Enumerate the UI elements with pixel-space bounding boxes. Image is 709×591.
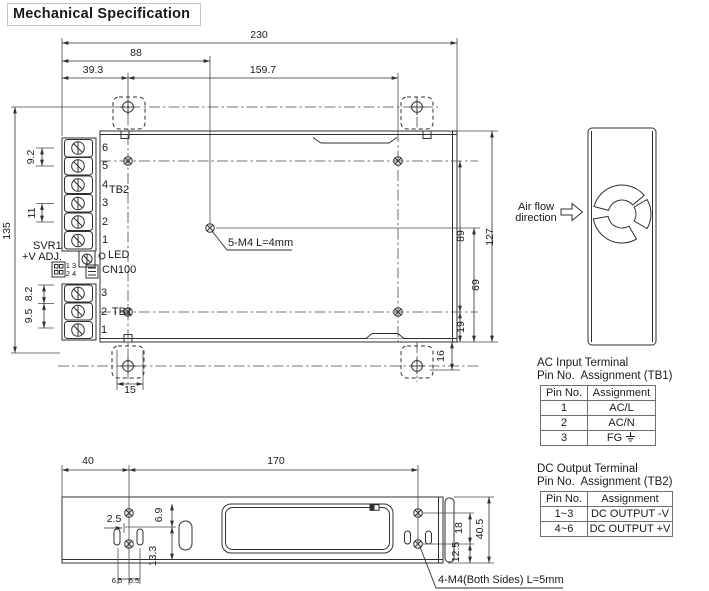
dim-bracket-width: 15 [124, 385, 136, 397]
tb2-pin-6: 6 [102, 142, 108, 154]
dim-right-a: 89 [456, 230, 468, 242]
dc-output-table: Pin No. Assignment 1~3 DC OUTPUT -V 4~6 … [540, 491, 673, 537]
table-row: 1 AC/L [541, 401, 656, 416]
dim-overall-height: 135 [2, 222, 14, 240]
dim-slot-pitch-b: 6.5 [129, 577, 139, 585]
dim-right-overall: 127 [485, 228, 497, 246]
ac-table-subtitle: Pin No. Assignment (TB1) [537, 370, 673, 382]
earth-ground-icon [625, 432, 636, 442]
tb2-pin-2: 2 [102, 216, 108, 228]
ac-table-title: AC Input Terminal [537, 357, 673, 369]
tb2-terminal-block [62, 138, 96, 251]
dc-table-title: DC Output Terminal [537, 463, 673, 475]
ac-row1-pin: 1 [541, 401, 588, 416]
cn100-label: CN100 [102, 264, 136, 276]
dim-right-b: 69 [471, 279, 483, 291]
extension-lines-bottom [62, 465, 494, 585]
dim-tb1-pitch-a: 8.2 [24, 287, 36, 302]
ac-row3-assignment: FG [588, 431, 656, 446]
dim-left-offset: 39.3 [83, 65, 103, 77]
screw-note-bottom: 4-M4(Both Sides) L=5mm [438, 574, 564, 586]
dim-hole-to-edge: 12.5 [451, 542, 463, 562]
dc-row1-pin: 1~3 [541, 507, 588, 522]
dc-col-pin: Pin No. [541, 492, 588, 507]
tb2-label: TB2 [109, 184, 129, 196]
ac-row2-pin: 2 [541, 416, 588, 431]
dim-tb2-pitch-b: 11 [27, 208, 39, 219]
dim-bracket-height: 16 [436, 350, 448, 362]
dim-right-c: 19 [456, 321, 468, 333]
fan-grille-icon [593, 185, 651, 243]
dc-col-assignment: Assignment [588, 492, 673, 507]
ac-row3-pin: 3 [541, 431, 588, 446]
dim-bottom-overall-height: 40.5 [475, 519, 487, 539]
vadj-label: +V ADJ. [22, 251, 62, 263]
tb2-pin-4: 4 [102, 179, 108, 191]
ac-col-pin: Pin No. [541, 386, 588, 401]
dc-row2-pin: 4~6 [541, 522, 588, 537]
airflow-arrow-icon [561, 204, 583, 221]
extension-lines-top [11, 38, 498, 390]
page-title: Mechanical Specification [7, 3, 201, 26]
ac-col-assignment: Assignment [588, 386, 656, 401]
tb2-pin-3: 3 [102, 197, 108, 209]
dim-bottom-hole-spacing: 170 [267, 456, 285, 468]
dc-row2-assignment: DC OUTPUT +V [588, 522, 673, 537]
tb2-pin-1: 1 [102, 234, 108, 246]
dim-hole-pitch: 18 [454, 522, 466, 534]
table-row: 1~3 DC OUTPUT -V [541, 507, 673, 522]
dim-left-to-center: 88 [130, 48, 142, 60]
ac-input-table: Pin No. Assignment 1 AC/L 2 AC/N 3 FG [540, 385, 656, 446]
tb1-label: TB1 [112, 306, 132, 318]
tb1-pin-1: 1 [101, 324, 107, 336]
dim-tb1-pitch-b: 9.5 [24, 309, 36, 324]
table-row: 3 FG [541, 431, 656, 446]
ac-row1-assignment: AC/L [588, 401, 656, 416]
ac-input-terminal-section: AC Input Terminal Pin No. Assignment (TB… [537, 357, 673, 446]
dim-slot-pitch-a: 6.5 [112, 577, 122, 585]
dc-output-terminal-section: DC Output Terminal Pin No. Assignment (T… [537, 463, 673, 537]
ac-row2-assignment: AC/N [588, 416, 656, 431]
cn-pins-row2: 2 4 [66, 270, 76, 278]
dim-tb2-pitch-a: 9.2 [26, 150, 38, 165]
led-label: LED [108, 249, 129, 261]
table-row: 4~6 DC OUTPUT +V [541, 522, 673, 537]
mechanical-specification-page: Mechanical Specification 230 88 39.3 159… [0, 0, 709, 591]
tb1-pin-2: 2 [101, 306, 107, 318]
tb1-terminal-block [62, 284, 96, 340]
airflow-label-line2: direction [515, 212, 557, 224]
dc-table-subtitle: Pin No. Assignment (TB2) [537, 476, 673, 488]
dc-row1-assignment: DC OUTPUT -V [588, 507, 673, 522]
tb1-pin-3: 3 [101, 287, 107, 299]
cn-pinout-icon [52, 262, 65, 277]
dim-left-to-hole: 40 [82, 456, 94, 468]
dim-slot-offset: 2.5 [107, 514, 122, 526]
dim-hole-spacing: 159.7 [250, 65, 276, 77]
screw-note-top: 5-M4 L=4mm [228, 237, 293, 249]
dim-overall-width: 230 [250, 30, 268, 42]
table-row: 2 AC/N [541, 416, 656, 431]
dim-edge-b: 13.3 [148, 546, 160, 566]
tb2-pin-5: 5 [102, 160, 108, 172]
dim-edge-a: 6.9 [154, 508, 166, 523]
